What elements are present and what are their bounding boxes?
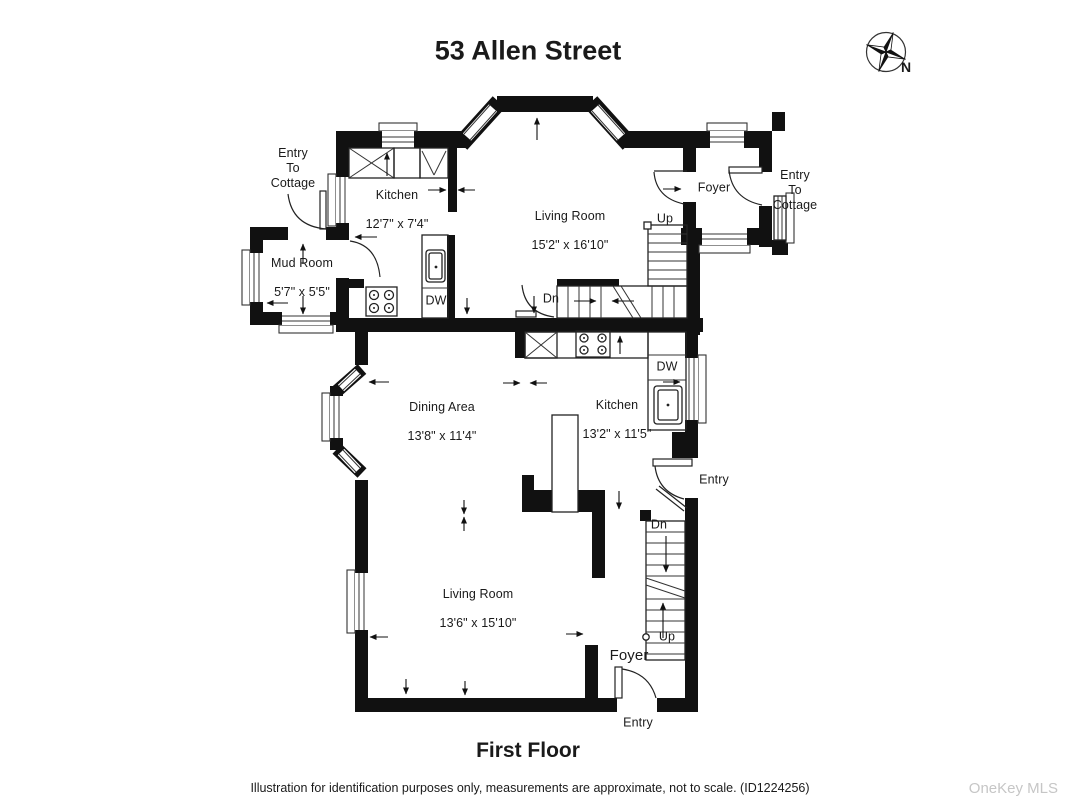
room-label-kitchen-upper: Kitchen 12'7" x 7'4" (366, 173, 429, 247)
entry-to-cottage-label-right: Entry To Cottage (773, 168, 817, 212)
up-label-lower: Up (659, 630, 675, 645)
room-label-living-lower: Living Room 13'6" x 15'10" (440, 572, 517, 646)
room-dims: 15'2" x 16'10" (532, 238, 609, 253)
room-label-foyer-lower: Foyer (610, 647, 649, 665)
up-label-upper: Up (657, 212, 673, 227)
dw-label-lower: DW (656, 360, 677, 375)
room-dims: 13'6" x 15'10" (440, 616, 517, 631)
room-dims: 13'8" x 11'4" (408, 429, 477, 444)
room-label-foyer-upper: Foyer (698, 181, 730, 196)
compass-icon (866, 32, 905, 71)
dn-label-upper: Dn (543, 292, 559, 307)
stove-icon-upper (366, 287, 397, 316)
room-name: Living Room (440, 587, 517, 602)
room-label-dining: Dining Area 13'8" x 11'4" (408, 385, 477, 459)
sink-icon-upper (426, 250, 445, 282)
room-name: Kitchen (366, 188, 429, 203)
chimney (552, 415, 578, 512)
page-title: 53 Allen Street (435, 36, 622, 67)
room-label-mud-room: Mud Room 5'7" x 5'5" (271, 241, 333, 315)
room-name: Dining Area (408, 400, 477, 415)
disclaimer-text: Illustration for identification purposes… (250, 781, 809, 795)
room-dims: 13'2" x 11'5" (583, 427, 652, 442)
entry-to-cottage-label-left: Entry To Cottage (271, 146, 315, 190)
stove-icon-lower (576, 331, 610, 357)
floor-plan-drawing (0, 0, 1072, 804)
room-name: Mud Room (271, 256, 333, 271)
room-label-living-upper: Living Room 15'2" x 16'10" (532, 194, 609, 268)
dn-label-lower: Dn (651, 518, 667, 533)
floor-label: First Floor (476, 739, 580, 763)
sink-icon-lower (654, 386, 682, 424)
room-label-kitchen-lower: Kitchen 13'2" x 11'5" (583, 383, 652, 457)
dw-label-upper: DW (425, 294, 446, 309)
floor-plan-page: { "header": { "title": "53 Allen Street"… (0, 0, 1072, 804)
room-name: Living Room (532, 209, 609, 224)
entry-label-bottom: Entry (623, 716, 653, 731)
room-name: Kitchen (583, 398, 652, 413)
room-dims: 5'7" x 5'5" (271, 285, 333, 300)
watermark: OneKey MLS (969, 780, 1058, 797)
entry-label-mid: Entry (699, 473, 729, 488)
room-dims: 12'7" x 7'4" (366, 217, 429, 232)
compass-north-label: N (901, 59, 911, 75)
